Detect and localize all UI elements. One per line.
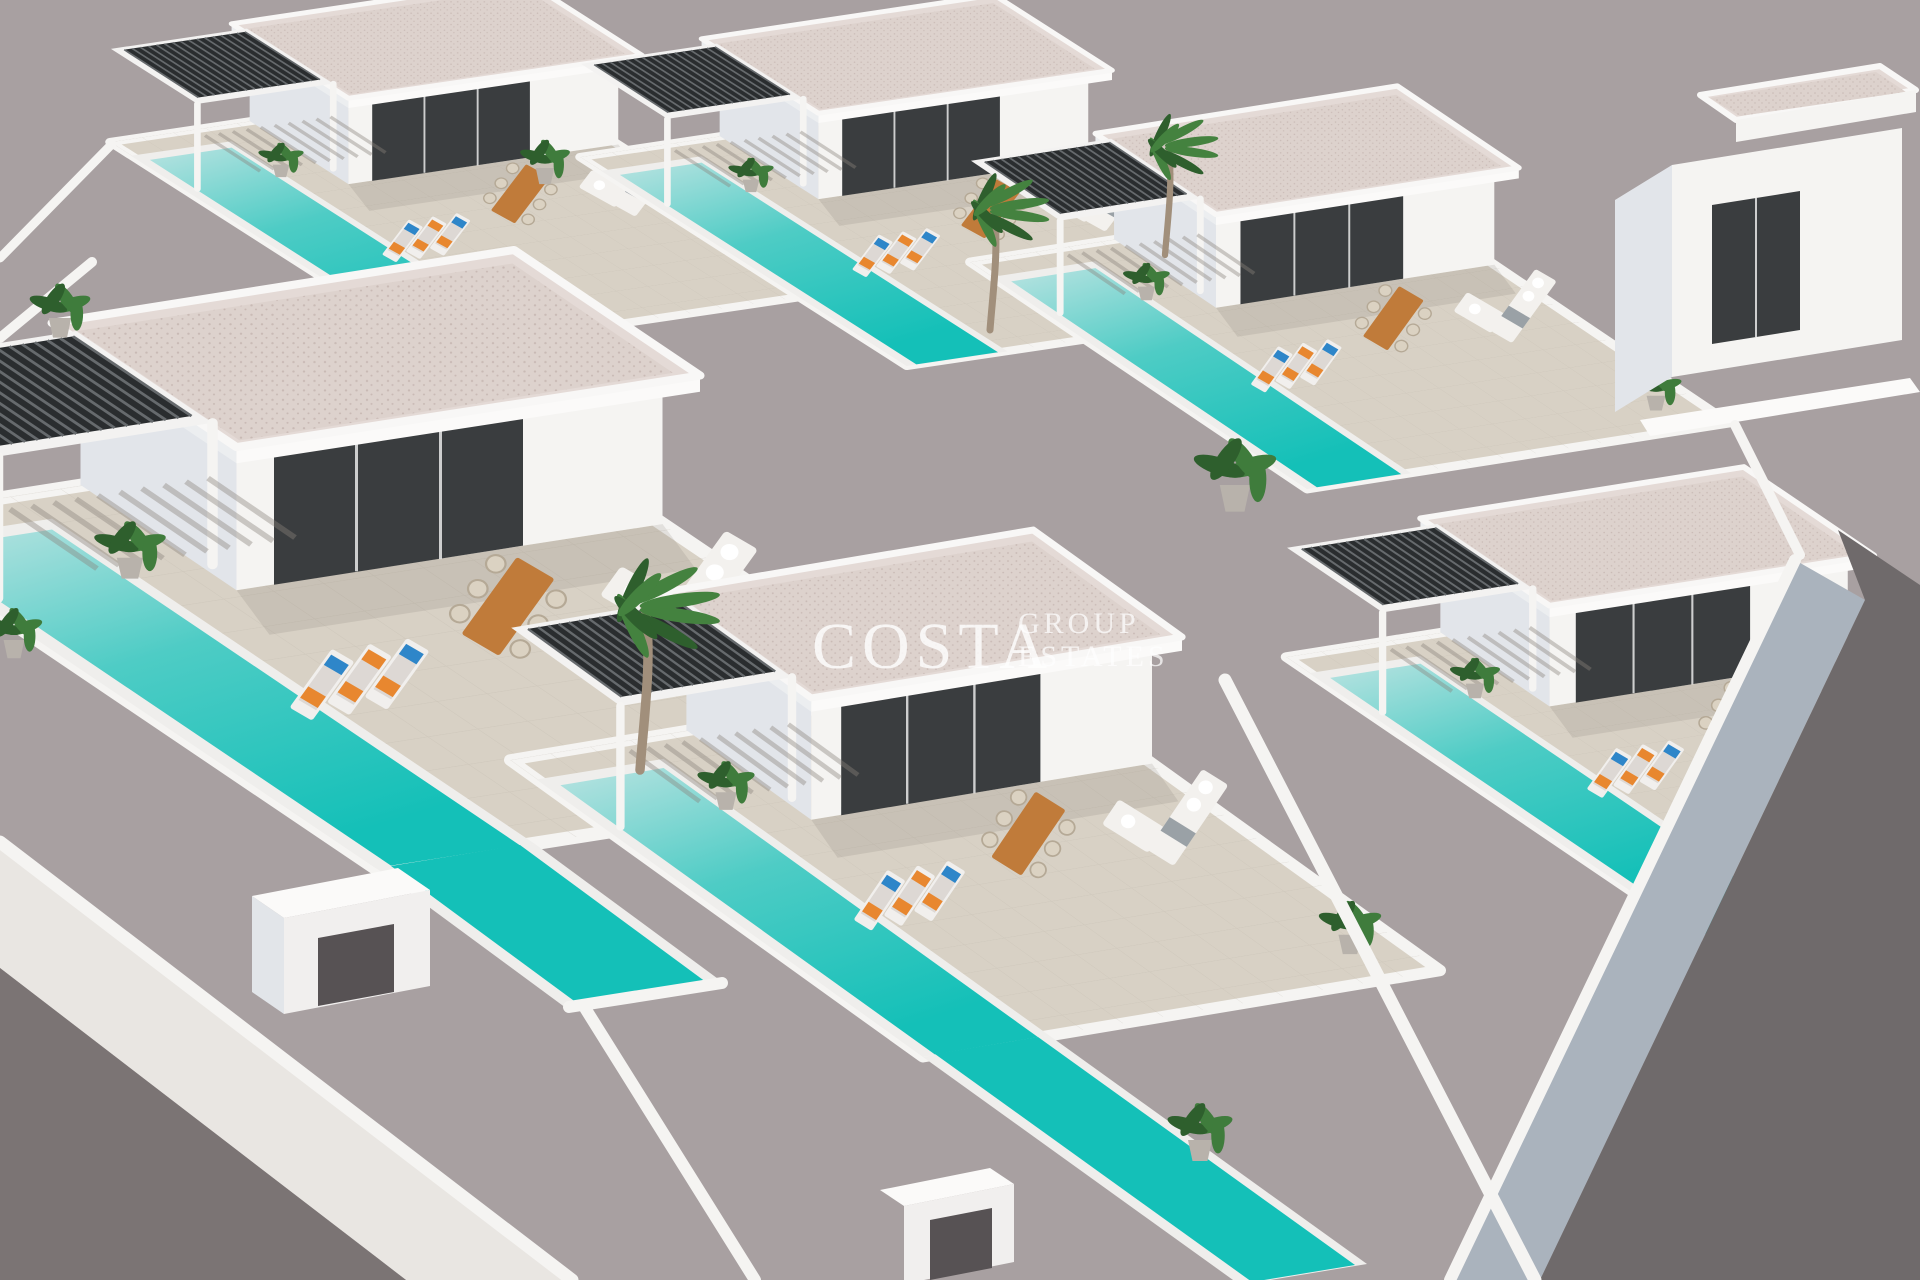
watermark-group: GROUP: [1018, 607, 1140, 640]
villa-development-render: COSTA GROUP ESTATES: [0, 0, 1920, 1280]
watermark-brand: COSTA: [812, 610, 1053, 683]
tower-side-wall: [1615, 165, 1672, 412]
watermark: COSTA GROUP ESTATES: [812, 607, 1169, 683]
watermark-estates: ESTATES: [1018, 640, 1169, 673]
render-image: COSTA GROUP ESTATES: [0, 0, 1920, 1280]
